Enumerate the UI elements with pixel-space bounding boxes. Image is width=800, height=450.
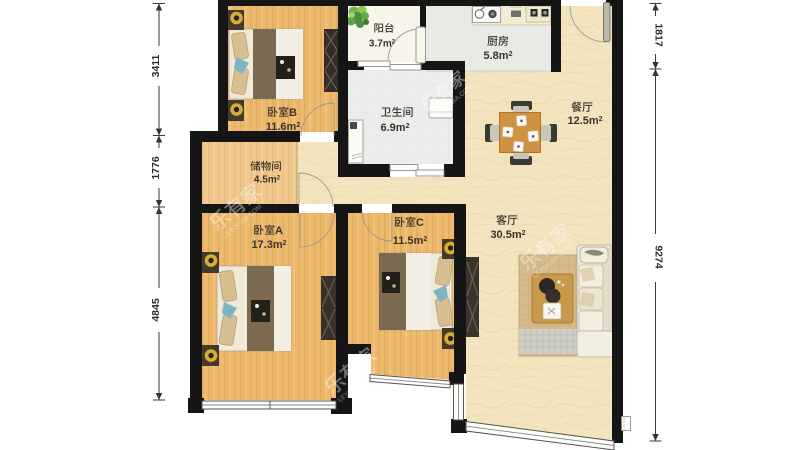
svg-text:B: B xyxy=(289,107,297,119)
svg-text:A: A xyxy=(275,225,283,237)
svg-text:C: C xyxy=(416,217,424,229)
svg-text:30.5m2: 30.5m2 xyxy=(490,229,525,241)
svg-text:17.3m2: 17.3m2 xyxy=(251,239,286,251)
svg-text:3.7m2: 3.7m2 xyxy=(369,39,396,50)
svg-text:11.5m2: 11.5m2 xyxy=(393,235,428,247)
svg-text:12.5m2: 12.5m2 xyxy=(567,115,602,127)
svg-text:4.5m2: 4.5m2 xyxy=(254,175,281,186)
svg-text:11.6m2: 11.6m2 xyxy=(266,121,301,133)
svg-text:3411: 3411 xyxy=(150,54,162,77)
svg-text:4845: 4845 xyxy=(150,298,162,322)
svg-text:1776: 1776 xyxy=(150,156,162,180)
svg-text:1817: 1817 xyxy=(653,23,665,47)
svg-text:5.8m2: 5.8m2 xyxy=(484,50,513,62)
svg-text:9274: 9274 xyxy=(653,245,665,269)
svg-text:6.9m2: 6.9m2 xyxy=(381,122,410,134)
